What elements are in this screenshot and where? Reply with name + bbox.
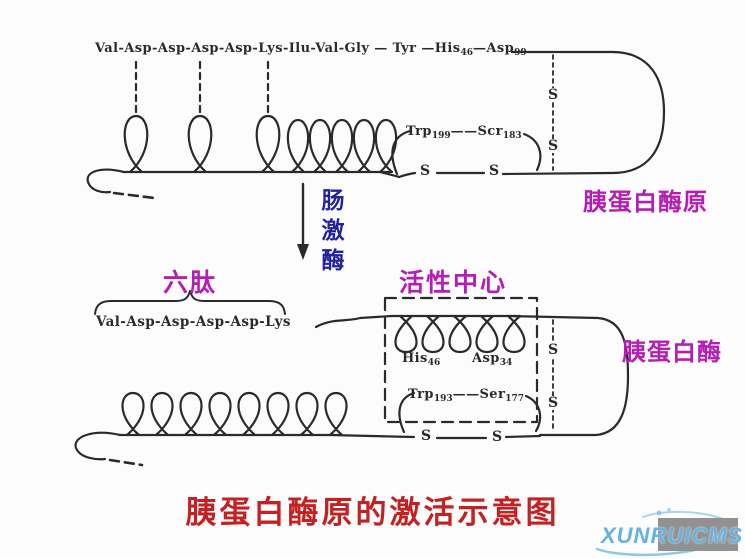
coil-to-s-line xyxy=(506,436,540,437)
residue-label: His xyxy=(402,351,428,366)
disulfide-s: S xyxy=(487,164,501,178)
active-center-label: 活性中心 xyxy=(399,263,507,299)
watermark-logo: XUNRUICMS xyxy=(601,523,743,549)
trypsinogen-coil xyxy=(124,116,399,177)
residue-label: Trp xyxy=(408,387,434,402)
residue-number: 183 xyxy=(503,131,522,141)
disulfide-s: S xyxy=(418,164,432,178)
enterokinase-label: 肠激酶 xyxy=(314,188,348,284)
residue-number: 193 xyxy=(434,394,453,404)
coil-to-s-line xyxy=(399,173,415,177)
active-center-coil xyxy=(316,316,628,435)
sequence-text: —Asp xyxy=(473,41,514,56)
chain-tail xyxy=(88,170,124,193)
disulfide-s: S xyxy=(546,88,560,102)
residue-number: 99 xyxy=(514,48,527,58)
his-label: His46 xyxy=(402,351,440,368)
disulfide-s: S xyxy=(546,396,560,410)
residue-number: 46 xyxy=(428,358,441,368)
trypsin-label: 胰蛋白酶 xyxy=(622,332,722,367)
trypsinogen-sequence: Val-Asp-Asp-Asp-Asp-Lys-Ilu-Val-Gly — Ty… xyxy=(95,41,527,58)
chain-tail-dashed xyxy=(110,460,142,465)
hexapeptide-label: 六肽 xyxy=(163,263,217,299)
trypsin-coil xyxy=(120,393,414,437)
bond-dash: —— xyxy=(451,124,478,139)
disulfide-s: S xyxy=(546,139,560,153)
hexapeptide-sequence: Val-Asp-Asp-Asp-Asp-Lys xyxy=(96,314,291,330)
residue-number: 34 xyxy=(500,358,513,368)
residue-number: 199 xyxy=(432,131,451,141)
residue-label: Scr xyxy=(477,124,502,139)
chain-tail-dashed xyxy=(114,193,154,198)
arrow-head xyxy=(297,244,309,260)
disulfide-s: S xyxy=(490,430,504,444)
trp-ser-label-bottom: Trp193——Ser177 xyxy=(408,387,524,404)
residue-label: Trp xyxy=(406,124,432,139)
disulfide-s: S xyxy=(546,343,560,357)
trypsinogen-label: 胰蛋白酶原 xyxy=(583,182,708,217)
bond-dash: —— xyxy=(453,387,480,402)
diagram-strokes xyxy=(0,0,745,559)
residue-label: Ser xyxy=(479,387,505,402)
chain-tail xyxy=(76,433,120,459)
residue-number: 177 xyxy=(505,394,524,404)
asp-label: Asp34 xyxy=(472,351,512,368)
slide: Val-Asp-Asp-Asp-Asp-Lys-Ilu-Val-Gly — Ty… xyxy=(0,0,745,559)
sequence-text: Val-Asp-Asp-Asp-Asp-Lys-Ilu-Val-Gly — Ty… xyxy=(95,41,461,56)
loop-arc-right xyxy=(524,134,540,170)
residue-number: 46 xyxy=(461,48,474,58)
residue-label: Asp xyxy=(472,351,500,366)
disulfide-s: S xyxy=(419,429,433,443)
trp-ser-label-top: Trp199——Scr183 xyxy=(406,124,522,141)
trypsinogen-d-loop xyxy=(503,52,664,174)
